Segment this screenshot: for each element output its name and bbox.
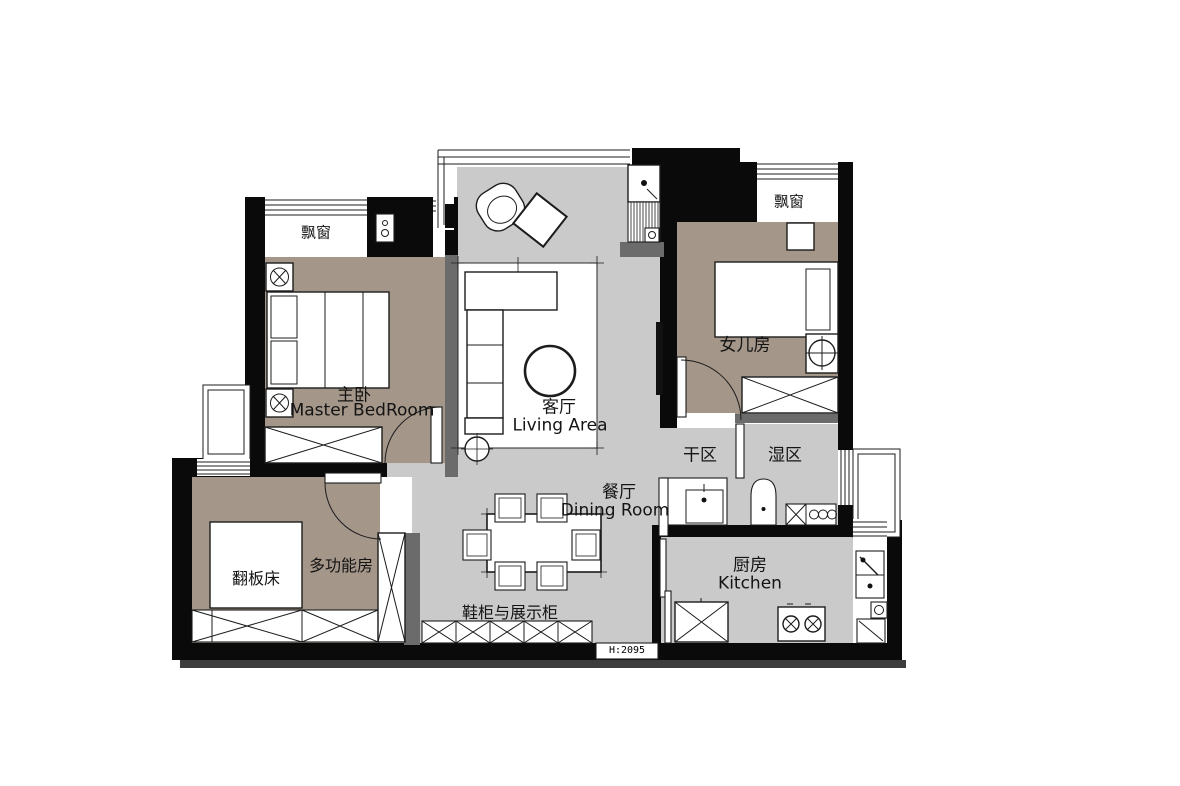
outlet-box-icon (871, 602, 887, 618)
strip-master-living (445, 255, 458, 477)
tv-icon (656, 322, 663, 395)
wall-right-upper (838, 162, 853, 450)
wall-kitchen-right (887, 520, 902, 660)
dining-chair (495, 494, 525, 522)
wall-bay-pillar-right-room (740, 162, 757, 222)
floor-plan-svg (0, 0, 1180, 786)
utility-column (628, 165, 660, 242)
nightstand-lamp-icon (266, 389, 293, 417)
dining-chair (463, 530, 491, 560)
sliding-door-leaf (660, 539, 666, 597)
height-annotation-box (596, 643, 658, 659)
kitchen-sink-icon (856, 551, 884, 598)
sill-daughter (735, 414, 838, 423)
flip-bed (210, 522, 302, 608)
vanity-sink-icon (662, 478, 727, 525)
bay-window-left (265, 197, 367, 257)
strip-multi-hall (404, 533, 420, 645)
wall-left (172, 458, 192, 660)
toilet-icon (751, 479, 776, 525)
shower-shelf-icon (786, 504, 837, 525)
vent-hatch-icon (628, 202, 660, 242)
dining-chair (537, 562, 567, 590)
wall-shadow (180, 660, 906, 668)
sliding-door-leaf (665, 591, 671, 643)
stove-icon (778, 604, 825, 641)
floor-plan-canvas: 飘窗 主卧 Master BedRoom 客厅 Living Area 飘窗 女… (0, 0, 1180, 786)
daughter-wardrobe (742, 377, 838, 413)
wall-panel-icon (376, 214, 394, 242)
bedside-table (787, 223, 814, 250)
bay-window-right (757, 162, 838, 222)
master-wardrobe (265, 427, 382, 463)
washing-machine-icon (628, 165, 660, 202)
fridge-icon (675, 598, 728, 642)
dining-chair (572, 530, 600, 560)
tall-wardrobe (378, 533, 405, 642)
master-bedroom-furniture (265, 263, 389, 463)
wall-kitchen-top (652, 525, 856, 537)
bathroom-door-leaf (659, 478, 668, 536)
shoe-cabinet (422, 621, 592, 643)
dining-chair (495, 562, 525, 590)
dining-chair (537, 494, 567, 522)
fan-nightstand-icon (806, 334, 838, 373)
dry-wet-divider (736, 424, 744, 478)
daughter-bed (715, 262, 838, 337)
wall-bottom (172, 643, 902, 660)
bay-window-lower-left (197, 385, 250, 476)
low-cabinet (192, 610, 378, 642)
corner-cabinet-icon (857, 619, 885, 643)
kitchen-window (853, 519, 887, 537)
master-doorway-floor (387, 463, 445, 477)
nightstand-lamp-icon (266, 263, 293, 291)
door-nook (380, 477, 412, 533)
sill-utility (620, 242, 664, 257)
master-bed (267, 292, 389, 388)
